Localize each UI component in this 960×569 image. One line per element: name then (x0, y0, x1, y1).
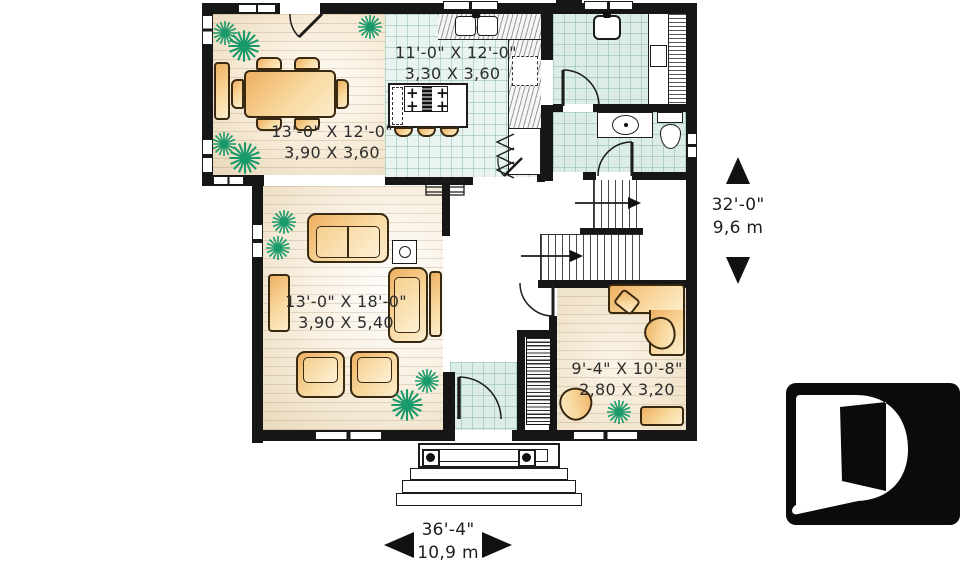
logo-d-icon (786, 383, 960, 525)
burner-icon: + (436, 101, 449, 111)
window-kitchen-top (443, 1, 498, 10)
porch-step-3 (396, 493, 582, 506)
porch-column-dot (426, 453, 435, 462)
office-label: 9'-4" X 10'-8" 2,80 X 3,20 (567, 358, 687, 400)
wall-laundry-bottom-b (593, 104, 686, 112)
width-m: 10,9 m (398, 542, 498, 565)
porch-step-2 (402, 480, 576, 493)
living-label: 13'-0" X 18'-0" 3,90 X 5,40 (276, 291, 416, 333)
dining-dims-ft: 13'-0" X 12'-0" (262, 121, 402, 142)
kitchen-sink-right (477, 16, 498, 36)
cooktop-grill (422, 86, 432, 112)
dining-chair (336, 79, 349, 109)
kitchen-sink-left (455, 16, 476, 36)
living-dims-ft: 13'-0" X 18'-0" (276, 291, 416, 312)
window-living-left (252, 224, 263, 258)
wall-laundry-bottom-a (553, 104, 563, 112)
wall-closet-top (517, 330, 557, 337)
toilet-tank (657, 112, 683, 123)
window-dining-left-1 (202, 15, 213, 45)
refrigerator (508, 128, 541, 175)
dim-arrow-down (726, 257, 750, 284)
sofa-cushion-line (347, 227, 349, 257)
fireplace-stub (442, 185, 450, 236)
laundry-faucet (603, 12, 611, 18)
fireplace-wall (385, 177, 473, 185)
armchair-seat (357, 357, 392, 383)
island-dash (392, 87, 403, 125)
window-dining-top (238, 4, 276, 13)
buffet (214, 62, 230, 120)
back-door-opening (280, 3, 320, 14)
stairs-lower-flight (540, 234, 643, 280)
wall-bath-bottom-b (632, 172, 686, 180)
kitchen-dims-ft: 11'-0" X 12'-0" (395, 42, 510, 63)
wall-right (686, 3, 697, 441)
builder-logo (786, 383, 960, 525)
height-ft: 32'-0" (702, 194, 774, 217)
window-office-bottom (573, 431, 638, 440)
wall-left-lower (252, 175, 263, 443)
porch-step-1 (410, 468, 568, 480)
dining-chair (231, 79, 244, 109)
wall-bath-bottom-a (583, 172, 596, 180)
height-dimension: 32'-0" 9,6 m (702, 194, 774, 240)
wall-foyer-stub (443, 372, 455, 430)
dining-dims-m: 3,90 X 3,60 (262, 142, 402, 163)
stairs-upper-flight (593, 180, 643, 228)
window-laundry-top (584, 1, 633, 10)
console-table (429, 271, 442, 337)
washer (650, 45, 667, 67)
armchair-seat (303, 357, 338, 383)
wall-closet-left (517, 330, 525, 430)
vanity-drain (624, 123, 628, 127)
lamp-icon (399, 246, 411, 258)
wall-bottom-entry-left (424, 430, 455, 441)
laundry-sink (593, 15, 621, 40)
burner-icon: + (406, 101, 419, 111)
dining-table (244, 70, 336, 118)
width-ft: 36'-4" (398, 519, 498, 542)
office-dims-m: 2,80 X 3,20 (567, 379, 687, 400)
office-cabinet (640, 406, 684, 426)
wall-kitchen-hall-a (541, 3, 553, 60)
floorplan-page: { "rooms": { "kitchen": {"dims_ft": "11'… (0, 0, 960, 569)
kitchen-label: 11'-0" X 12'-0" 3,30 X 3,60 (395, 42, 510, 84)
wall-bottom-entry-right (512, 430, 557, 441)
kitchen-dims-m: 3,30 X 3,60 (395, 63, 510, 84)
dim-arrow-up (726, 157, 750, 184)
window-dining-left-2 (202, 139, 213, 173)
window-dining-bottom (213, 176, 244, 185)
office-dims-ft: 9'-4" X 10'-8" (567, 358, 687, 379)
living-dims-m: 3,90 X 5,40 (276, 312, 416, 333)
width-dimension: 36'-4" 10,9 m (398, 519, 498, 565)
window-bathroom-right (687, 133, 697, 158)
dining-chair (256, 57, 282, 70)
height-m: 9,6 m (702, 217, 774, 240)
shelving-closet (668, 14, 686, 104)
dining-label: 13'-0" X 12'-0" 3,90 X 3,60 (262, 121, 402, 163)
kitchen-faucet (472, 13, 480, 18)
back-step (556, 0, 582, 8)
porch-column-dot (522, 453, 531, 462)
foyer-floor (450, 362, 517, 430)
window-living-bottom (315, 431, 382, 440)
dining-chair (294, 57, 320, 70)
entry-closet (526, 337, 551, 425)
